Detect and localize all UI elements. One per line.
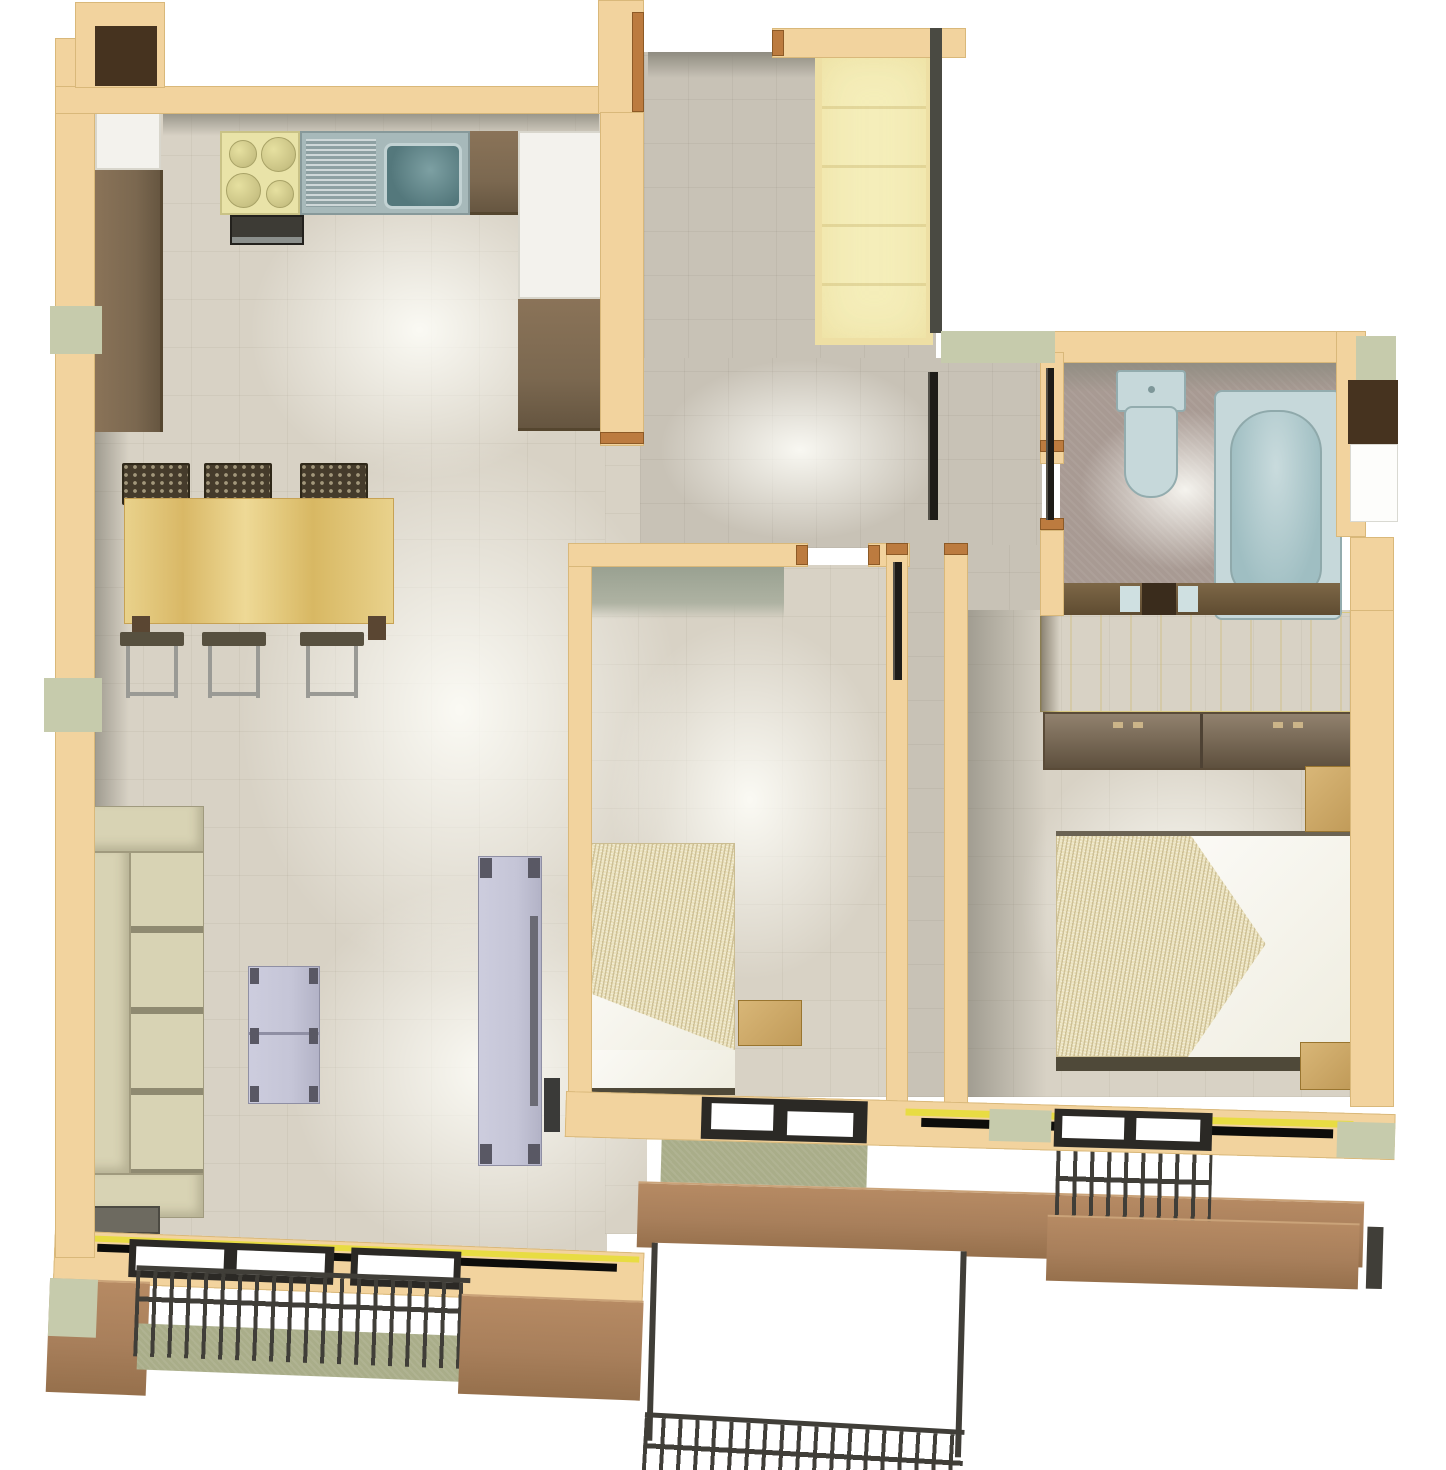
tall-white-cabinet: [518, 131, 602, 299]
bedroom-small-door-jamb: [868, 545, 880, 565]
balcony-door-window: [701, 1097, 868, 1144]
bedroom-large-left-wall: [944, 543, 968, 1105]
sofa-armrest: [78, 806, 204, 852]
stool: [300, 622, 364, 700]
right-wall-white-block: [1350, 444, 1398, 522]
table-leg: [368, 616, 386, 640]
exterior-wall: [458, 1294, 644, 1401]
bedroom-large-door-jamb: [944, 543, 968, 555]
bedroom-wardrobe-top: [1040, 612, 1360, 712]
bedroom-large-right-wall: [1350, 610, 1394, 1107]
burner: [229, 140, 257, 168]
entrance-door-jamb: [772, 30, 784, 56]
right-wall-mid: [1350, 537, 1394, 617]
burner: [261, 137, 296, 172]
double-bed: [1056, 831, 1350, 1071]
wall-column: [44, 678, 102, 732]
lower-terrace-floor: [650, 1243, 965, 1442]
drainboard: [306, 139, 376, 207]
door-leaf: [928, 372, 938, 520]
bedroom-small-top-wall: [568, 543, 808, 567]
sink-basin: [384, 143, 462, 209]
hall-right-wall: [930, 28, 942, 333]
corridor-door-jamb: [886, 543, 908, 555]
entrance-door-jamb: [632, 12, 644, 112]
balcony-railing: [133, 1265, 470, 1369]
wall-column: [1356, 336, 1396, 382]
sink-unit: [300, 131, 470, 215]
bedroom-small-left-wall: [568, 543, 592, 1105]
wall-column: [50, 306, 102, 354]
wall-niche: [95, 26, 157, 86]
railing-end-cap: [1366, 1227, 1384, 1289]
nightstand-top-right: [1305, 766, 1355, 832]
bathroom-vanity: [1056, 583, 1340, 615]
dining-table: [124, 498, 394, 624]
balcony-center-group: [621, 1128, 1410, 1470]
stove: [220, 131, 300, 215]
oven: [230, 215, 304, 245]
burner: [266, 180, 294, 208]
single-bed: [583, 843, 735, 1095]
balcony-left-group: [44, 1228, 691, 1452]
kitchen-counter: [470, 131, 518, 215]
left-wall: [55, 38, 95, 1258]
corridor-floor: [640, 358, 1042, 548]
entry-wardrobe: [815, 50, 933, 345]
coffee-table: [248, 966, 320, 1104]
corridor-between-bedrooms-floor: [907, 545, 945, 1097]
wall-column: [1336, 1122, 1395, 1160]
bedroom-wardrobe-cabinets: [1043, 712, 1360, 770]
stool: [202, 622, 266, 700]
top-left-stub: [75, 2, 165, 88]
nightstand-small: [738, 1000, 802, 1046]
right-wall-window-dark: [1348, 380, 1398, 444]
corridor-floor-patch: [965, 545, 1042, 617]
bedroom-large-shadow: [965, 610, 1047, 1097]
kitchen-top-wall: [55, 86, 643, 114]
kitchen-side-cabinet: [518, 299, 602, 431]
door-leaf: [893, 562, 902, 680]
exterior-column: [48, 1278, 98, 1338]
av-equipment: [544, 1078, 560, 1132]
sofa-cushions: [130, 852, 204, 1174]
burner: [226, 173, 261, 208]
toilet: [1116, 370, 1186, 502]
toilet-bowl: [1124, 406, 1178, 498]
balcony-right-parapet: [1046, 1215, 1360, 1290]
wall-column: [989, 1109, 1052, 1143]
door-leaf: [1046, 368, 1054, 520]
bedroom-small-door-jamb: [796, 545, 808, 565]
floor-plan-render: [0, 0, 1446, 1470]
wall-column: [941, 331, 1055, 363]
sofa: [78, 806, 204, 1218]
kitchen-hall-wall: [600, 112, 644, 446]
kitchen-door-jamb: [600, 432, 644, 444]
bathtub-inner: [1230, 410, 1322, 598]
bathroom-wall-face: [1062, 360, 1338, 392]
bathroom-left-wall-lower: [1040, 530, 1064, 616]
mattress-foot: [583, 1050, 735, 1088]
bedroom-small-wall-face: [592, 565, 784, 619]
nightstand-bottom-right: [1300, 1042, 1352, 1090]
tv-unit: [478, 856, 542, 1166]
kitchen-left-counter: [95, 170, 163, 432]
stool: [120, 622, 184, 700]
window: [1054, 1109, 1213, 1151]
